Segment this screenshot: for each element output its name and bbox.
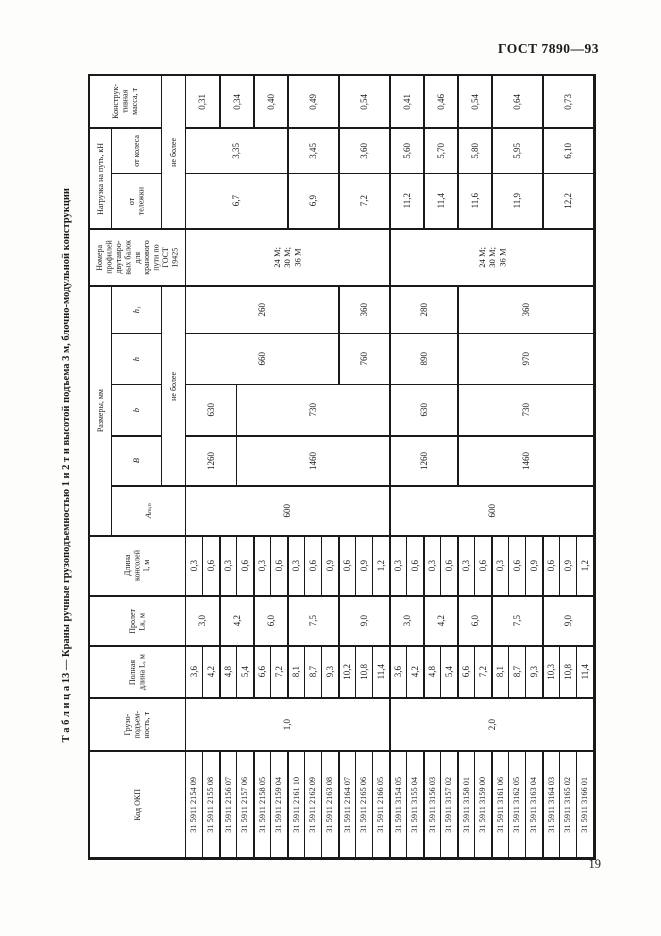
okp-code-cell: 31 5911 3154 05 bbox=[390, 752, 407, 858]
profile-numbers-cell: 24 М; 30 М; 36 М bbox=[390, 230, 594, 287]
header-mass-text: Конструк- тивная масса, т bbox=[111, 84, 139, 119]
okp-code-cell-text: 31 5911 3154 05 bbox=[394, 777, 404, 833]
console-length-cell: 0,6 bbox=[509, 537, 526, 597]
okp-code-cell-text: 31 5911 2165 06 bbox=[359, 777, 369, 833]
console-length-cell: 0,3 bbox=[186, 537, 203, 597]
header-ne-bolee-dim: не более bbox=[162, 287, 186, 487]
span-value-cell-text: 9,0 bbox=[359, 615, 370, 626]
okp-code-cell: 31 5911 3158 01 bbox=[458, 752, 475, 858]
full-length-cell-text: 10,3 bbox=[546, 664, 557, 680]
header-span-text: Пролет Lк, м bbox=[128, 609, 147, 634]
wheel-load-cell: 5,70 bbox=[424, 129, 458, 174]
header-h1-text: h₁ bbox=[131, 306, 141, 313]
okp-code-cell: 31 5911 3159 00 bbox=[475, 752, 492, 858]
console-length-cell: 0,6 bbox=[237, 537, 254, 597]
full-length-cell: 3,6 bbox=[186, 647, 203, 699]
console-length-cell: 0,3 bbox=[458, 537, 475, 597]
wheel-load-cell-text: 5,70 bbox=[436, 143, 447, 159]
b-value-cell: 730 bbox=[237, 385, 390, 437]
b-value-cell-text: 630 bbox=[206, 403, 217, 417]
header-ne-bolee-dim-text: не более bbox=[169, 372, 178, 401]
header-console-length-text: Длина консолей l, м bbox=[123, 550, 151, 581]
full-length-cell-text: 5,4 bbox=[240, 666, 251, 677]
span-value-cell: 9,0 bbox=[543, 597, 594, 647]
header-b-text: b bbox=[131, 408, 141, 412]
header-amin-text: Aₘᵢₙ bbox=[143, 503, 153, 518]
full-length-cell: 8,1 bbox=[288, 647, 305, 699]
span-value-cell-text: 3,0 bbox=[402, 615, 413, 626]
okp-code-cell: 31 5911 3161 06 bbox=[492, 752, 509, 858]
span-value-cell: 4,2 bbox=[424, 597, 458, 647]
header-dimensions: Размеры, мм bbox=[90, 287, 112, 537]
console-length-cell-text: 0,9 bbox=[563, 560, 574, 571]
B-value-cell: 1260 bbox=[186, 437, 237, 487]
h-value-cell: 660 bbox=[186, 334, 339, 385]
full-length-cell: 8,7 bbox=[305, 647, 322, 699]
okp-code-cell: 31 5911 2162 09 bbox=[305, 752, 322, 858]
full-length-cell-text: 3,6 bbox=[189, 666, 200, 677]
mass-value-cell: 0,34 bbox=[220, 76, 254, 129]
full-length-cell: 9,3 bbox=[526, 647, 543, 699]
okp-code-cell-text: 31 5911 3155 04 bbox=[410, 777, 420, 833]
okp-code-cell-text: 31 5911 3158 01 bbox=[462, 777, 472, 833]
h1-value-cell-text: 280 bbox=[419, 303, 430, 317]
B-value-cell-text: 1460 bbox=[308, 452, 319, 470]
header-h-text: h bbox=[131, 357, 141, 361]
console-length-cell-text: 1,2 bbox=[580, 560, 591, 571]
console-length-cell: 0,9 bbox=[356, 537, 373, 597]
trolley-load-cell: 11,9 bbox=[492, 174, 543, 230]
full-length-cell-text: 4,8 bbox=[427, 666, 438, 677]
full-length-cell: 3,6 bbox=[390, 647, 407, 699]
trolley-load-cell-text: 11,4 bbox=[436, 193, 447, 208]
span-value-cell: 4,2 bbox=[220, 597, 254, 647]
full-length-cell-text: 4,8 bbox=[223, 666, 234, 677]
full-length-cell: 9,3 bbox=[322, 647, 339, 699]
console-length-cell-text: 0,3 bbox=[393, 560, 404, 571]
mass-value-cell-text: 0,34 bbox=[232, 94, 243, 110]
full-length-cell: 8,7 bbox=[509, 647, 526, 699]
header-span: Пролет Lк, м bbox=[90, 597, 186, 647]
header-console-length: Длина консолей l, м bbox=[90, 537, 186, 597]
full-length-cell: 8,1 bbox=[492, 647, 509, 699]
okp-code-cell-text: 31 5911 3156 03 bbox=[428, 777, 438, 833]
page-number: 19 bbox=[589, 857, 602, 872]
okp-code-cell-text: 31 5911 2158 05 bbox=[258, 777, 268, 833]
wheel-load-cell: 3,35 bbox=[186, 129, 288, 174]
console-length-cell: 0,3 bbox=[492, 537, 509, 597]
B-value-cell-text: 1460 bbox=[521, 452, 532, 470]
mass-value-cell: 0,64 bbox=[492, 76, 543, 129]
okp-code-cell: 31 5911 3155 04 bbox=[407, 752, 424, 858]
full-length-cell: 10,3 bbox=[543, 647, 560, 699]
full-length-cell-text: 8,1 bbox=[495, 666, 506, 677]
gost-table: Конструк- тивная масса, тне болееНагрузк… bbox=[88, 74, 596, 860]
capacity-value-cell: 2,0 bbox=[390, 699, 594, 752]
mass-value-cell-text: 0,64 bbox=[512, 94, 523, 110]
okp-code-cell-text: 31 5911 3157 02 bbox=[444, 777, 454, 833]
mass-value-cell-text: 0,54 bbox=[359, 94, 370, 110]
full-length-cell-text: 8,7 bbox=[512, 666, 523, 677]
full-length-cell: 6,6 bbox=[254, 647, 271, 699]
profile-numbers-cell-text: 24 М; 30 М; 36 М bbox=[272, 247, 302, 268]
h-value-cell-text: 660 bbox=[257, 352, 268, 366]
okp-code-cell: 31 5911 3164 03 bbox=[543, 752, 560, 858]
trolley-load-cell-text: 11,6 bbox=[470, 193, 481, 208]
wheel-load-cell-text: 3,60 bbox=[359, 143, 370, 159]
wheel-load-cell-text: 3,35 bbox=[231, 143, 242, 159]
header-from-trolley-text: от тележки bbox=[127, 187, 146, 215]
full-length-cell-text: 5,4 bbox=[444, 666, 455, 677]
wheel-load-cell-text: 3,45 bbox=[308, 143, 319, 159]
span-value-cell: 6,0 bbox=[458, 597, 492, 647]
console-length-cell-text: 0,6 bbox=[444, 560, 455, 571]
full-length-cell: 10,2 bbox=[339, 647, 356, 699]
okp-code-cell: 31 5911 3165 02 bbox=[560, 752, 577, 858]
header-okp-code: Код ОКП bbox=[90, 752, 186, 858]
span-value-cell-text: 7,5 bbox=[308, 615, 319, 626]
mass-value-cell: 0,31 bbox=[186, 76, 220, 129]
wheel-load-cell: 5,95 bbox=[492, 129, 543, 174]
console-length-cell: 0,3 bbox=[424, 537, 441, 597]
span-value-cell: 9,0 bbox=[339, 597, 390, 647]
console-length-cell: 0,6 bbox=[305, 537, 322, 597]
console-length-cell-text: 0,6 bbox=[512, 560, 523, 571]
full-length-cell: 11,4 bbox=[373, 647, 390, 699]
b-value-cell-text: 730 bbox=[308, 403, 319, 417]
mass-value-cell-text: 0,31 bbox=[197, 94, 208, 110]
mass-value-cell: 0,40 bbox=[254, 76, 288, 129]
header-beam-profiles: Номера профилей двутавро- вых балок для … bbox=[90, 230, 186, 287]
mass-value-cell: 0,46 bbox=[424, 76, 458, 129]
span-value-cell: 3,0 bbox=[390, 597, 424, 647]
trolley-load-cell-text: 11,9 bbox=[512, 193, 523, 208]
okp-code-cell-text: 31 5911 2159 04 bbox=[274, 777, 284, 833]
console-length-cell-text: 0,3 bbox=[461, 560, 472, 571]
full-length-cell-text: 10,8 bbox=[563, 664, 574, 680]
b-value-cell-text: 730 bbox=[521, 403, 532, 417]
trolley-load-cell: 7,2 bbox=[339, 174, 390, 230]
okp-code-cell: 31 5911 2164 07 bbox=[339, 752, 356, 858]
console-length-cell: 0,3 bbox=[390, 537, 407, 597]
console-length-cell-text: 0,6 bbox=[546, 560, 557, 571]
console-length-cell-text: 0,3 bbox=[223, 560, 234, 571]
header-from-trolley: от тележки bbox=[112, 174, 162, 230]
mass-value-cell-text: 0,49 bbox=[308, 94, 319, 110]
header-B: B bbox=[112, 437, 162, 487]
mass-value-cell: 0,41 bbox=[390, 76, 424, 129]
full-length-cell-text: 9,3 bbox=[529, 666, 540, 677]
console-length-cell-text: 0,3 bbox=[189, 560, 200, 571]
trolley-load-cell-text: 6,7 bbox=[231, 195, 242, 206]
full-length-cell: 5,4 bbox=[441, 647, 458, 699]
wheel-load-cell: 5,60 bbox=[390, 129, 424, 174]
h1-value-cell-text: 360 bbox=[521, 303, 532, 317]
console-length-cell: 0,9 bbox=[526, 537, 543, 597]
okp-code-cell-text: 31 5911 3161 06 bbox=[496, 777, 506, 833]
header-ne-bolee-load-text: не более bbox=[169, 138, 178, 167]
console-length-cell-text: 0,3 bbox=[257, 560, 268, 571]
full-length-cell-text: 10,8 bbox=[359, 664, 370, 680]
span-value-cell-text: 6,0 bbox=[470, 615, 481, 626]
span-value-cell: 6,0 bbox=[254, 597, 288, 647]
trolley-load-cell: 11,6 bbox=[458, 174, 492, 230]
trolley-load-cell-text: 12,2 bbox=[563, 193, 574, 209]
console-length-cell: 1,2 bbox=[373, 537, 390, 597]
span-value-cell: 7,5 bbox=[288, 597, 339, 647]
header-full-length: Полная длина L, м bbox=[90, 647, 186, 699]
console-length-cell-text: 0,9 bbox=[325, 560, 336, 571]
console-length-cell-text: 0,3 bbox=[291, 560, 302, 571]
span-value-cell-text: 4,2 bbox=[436, 615, 447, 626]
console-length-cell: 0,3 bbox=[254, 537, 271, 597]
mass-value-cell-text: 0,40 bbox=[266, 94, 277, 110]
h1-value-cell-text: 360 bbox=[359, 303, 370, 317]
B-value-cell-text: 1260 bbox=[206, 452, 217, 470]
amin-value-cell: 600 bbox=[186, 487, 390, 537]
capacity-value-cell: 1,0 bbox=[186, 699, 390, 752]
header-load-on-track-text: Нагрузка на путь, кН bbox=[96, 143, 105, 215]
full-length-cell: 5,4 bbox=[237, 647, 254, 699]
trolley-load-cell: 6,7 bbox=[186, 174, 288, 230]
console-length-cell-text: 0,3 bbox=[427, 560, 438, 571]
okp-code-cell-text: 31 5911 2163 08 bbox=[325, 777, 335, 833]
header-beam-profiles-text: Номера профилей двутавро- вых балок для … bbox=[95, 240, 180, 275]
h-value-cell-text: 970 bbox=[521, 352, 532, 366]
mass-value-cell-text: 0,46 bbox=[436, 94, 447, 110]
profile-numbers-cell: 24 М; 30 М; 36 М bbox=[186, 230, 390, 287]
wheel-load-cell-text: 6,10 bbox=[563, 143, 574, 159]
full-length-cell-text: 11,4 bbox=[376, 664, 387, 679]
profile-numbers-cell-text: 24 М; 30 М; 36 М bbox=[477, 247, 507, 268]
document-standard-number: ГОСТ 7890—93 bbox=[498, 41, 599, 57]
okp-code-cell-text: 31 5911 3166 01 bbox=[580, 777, 590, 833]
b-value-cell: 630 bbox=[186, 385, 237, 437]
okp-code-cell: 31 5911 2159 04 bbox=[271, 752, 288, 858]
full-length-cell-text: 9,3 bbox=[325, 666, 336, 677]
amin-value-cell-text: 600 bbox=[487, 504, 498, 518]
mass-value-cell-text: 0,73 bbox=[563, 94, 574, 110]
header-load-on-track: Нагрузка на путь, кН bbox=[90, 129, 112, 230]
console-length-cell-text: 0,6 bbox=[308, 560, 319, 571]
trolley-load-cell: 6,9 bbox=[288, 174, 339, 230]
full-length-cell-text: 8,1 bbox=[291, 666, 302, 677]
header-dimensions-text: Размеры, мм bbox=[96, 389, 105, 432]
mass-value-cell-text: 0,54 bbox=[470, 94, 481, 110]
okp-code-cell: 31 5911 3156 03 bbox=[424, 752, 441, 858]
console-length-cell: 1,2 bbox=[577, 537, 594, 597]
header-capacity: Грузо- подъем- ность, т bbox=[90, 699, 186, 752]
console-length-cell-text: 0,6 bbox=[342, 560, 353, 571]
full-length-cell-text: 8,7 bbox=[308, 666, 319, 677]
trolley-load-cell-text: 6,9 bbox=[308, 195, 319, 206]
trolley-load-cell-text: 11,2 bbox=[402, 193, 413, 208]
okp-code-cell-text: 31 5911 2155 08 bbox=[206, 777, 216, 833]
okp-code-cell: 31 5911 3162 05 bbox=[509, 752, 526, 858]
mass-value-cell-text: 0,41 bbox=[402, 94, 413, 110]
full-length-cell-text: 11,4 bbox=[580, 664, 591, 679]
full-length-cell: 4,2 bbox=[407, 647, 424, 699]
wheel-load-cell: 5,80 bbox=[458, 129, 492, 174]
full-length-cell: 4,2 bbox=[203, 647, 220, 699]
okp-code-cell: 31 5911 2155 08 bbox=[203, 752, 220, 858]
okp-code-cell-text: 31 5911 2156 07 bbox=[224, 777, 234, 833]
okp-code-cell-text: 31 5911 3162 05 bbox=[512, 777, 522, 833]
span-value-cell-text: 6,0 bbox=[266, 615, 277, 626]
full-length-cell: 4,8 bbox=[220, 647, 237, 699]
full-length-cell-text: 10,2 bbox=[342, 664, 353, 680]
okp-code-cell-text: 31 5911 2154 09 bbox=[189, 777, 199, 833]
okp-code-cell: 31 5911 3157 02 bbox=[441, 752, 458, 858]
console-length-cell: 0,6 bbox=[543, 537, 560, 597]
table-title: Т а б л и ц а 13 — Краны ручные грузопод… bbox=[52, 74, 82, 856]
h1-value-cell: 260 bbox=[186, 287, 339, 334]
header-capacity-text: Грузо- подъем- ность, т bbox=[123, 711, 151, 739]
wheel-load-cell-text: 5,60 bbox=[402, 143, 413, 159]
B-value-cell: 1460 bbox=[458, 437, 594, 487]
okp-code-cell: 31 5911 2166 05 bbox=[373, 752, 390, 858]
mass-value-cell: 0,54 bbox=[458, 76, 492, 129]
okp-code-cell: 31 5911 2158 05 bbox=[254, 752, 271, 858]
table-title-text: Т а б л и ц а 13 — Краны ручные грузопод… bbox=[61, 188, 73, 742]
header-ne-bolee-load: не более bbox=[162, 76, 186, 230]
okp-code-cell: 31 5911 2165 06 bbox=[356, 752, 373, 858]
okp-code-cell-text: 31 5911 3159 00 bbox=[478, 777, 488, 833]
amin-value-cell-text: 600 bbox=[282, 504, 293, 518]
okp-code-cell: 31 5911 2156 07 bbox=[220, 752, 237, 858]
full-length-cell: 7,2 bbox=[271, 647, 288, 699]
capacity-value-cell-text: 1,0 bbox=[282, 719, 293, 730]
console-length-cell: 0,9 bbox=[560, 537, 577, 597]
trolley-load-cell: 11,4 bbox=[424, 174, 458, 230]
span-value-cell: 3,0 bbox=[186, 597, 220, 647]
h-value-cell: 890 bbox=[390, 334, 458, 385]
h1-value-cell: 360 bbox=[339, 287, 390, 334]
full-length-cell-text: 4,2 bbox=[410, 666, 421, 677]
span-value-cell: 7,5 bbox=[492, 597, 543, 647]
header-from-wheel: от колеса bbox=[112, 129, 162, 174]
okp-code-cell: 31 5911 3166 01 bbox=[577, 752, 594, 858]
console-length-cell: 0,3 bbox=[220, 537, 237, 597]
header-mass: Конструк- тивная масса, т bbox=[90, 76, 162, 129]
h-value-cell: 760 bbox=[339, 334, 390, 385]
console-length-cell-text: 0,6 bbox=[274, 560, 285, 571]
console-length-cell-text: 0,9 bbox=[529, 560, 540, 571]
B-value-cell: 1460 bbox=[237, 437, 390, 487]
okp-code-cell-text: 31 5911 2157 06 bbox=[240, 777, 250, 833]
console-length-cell-text: 0,6 bbox=[206, 560, 217, 571]
okp-code-cell: 31 5911 2154 09 bbox=[186, 752, 203, 858]
span-value-cell-text: 4,2 bbox=[232, 615, 243, 626]
full-length-cell: 11,4 bbox=[577, 647, 594, 699]
okp-code-cell: 31 5911 2161 10 bbox=[288, 752, 305, 858]
console-length-cell-text: 1,2 bbox=[376, 560, 387, 571]
console-length-cell-text: 0,6 bbox=[410, 560, 421, 571]
header-b: b bbox=[112, 385, 162, 437]
okp-code-cell-text: 31 5911 2161 10 bbox=[292, 777, 302, 833]
full-length-cell-text: 4,2 bbox=[206, 666, 217, 677]
okp-code-cell-text: 31 5911 2166 05 bbox=[376, 777, 386, 833]
capacity-value-cell-text: 2,0 bbox=[487, 719, 498, 730]
okp-code-cell: 31 5911 2157 06 bbox=[237, 752, 254, 858]
wheel-load-cell: 6,10 bbox=[543, 129, 594, 174]
mass-value-cell: 0,54 bbox=[339, 76, 390, 129]
console-length-cell-text: 0,3 bbox=[495, 560, 506, 571]
full-length-cell-text: 7,2 bbox=[274, 666, 285, 677]
full-length-cell: 4,8 bbox=[424, 647, 441, 699]
full-length-cell: 7,2 bbox=[475, 647, 492, 699]
console-length-cell: 0,6 bbox=[475, 537, 492, 597]
amin-value-cell: 600 bbox=[390, 487, 594, 537]
mass-value-cell: 0,73 bbox=[543, 76, 594, 129]
full-length-cell: 10,8 bbox=[356, 647, 373, 699]
full-length-cell-text: 6,6 bbox=[461, 666, 472, 677]
span-value-cell-text: 9,0 bbox=[563, 615, 574, 626]
header-full-length-text: Полная длина L, м bbox=[128, 654, 147, 690]
okp-code-cell: 31 5911 2163 08 bbox=[322, 752, 339, 858]
trolley-load-cell: 12,2 bbox=[543, 174, 594, 230]
console-length-cell: 0,6 bbox=[407, 537, 424, 597]
header-from-wheel-text: от колеса bbox=[132, 135, 141, 167]
B-value-cell: 1260 bbox=[390, 437, 458, 487]
trolley-load-cell: 11,2 bbox=[390, 174, 424, 230]
console-length-cell: 0,6 bbox=[271, 537, 288, 597]
trolley-load-cell-text: 7,2 bbox=[359, 195, 370, 206]
okp-code-cell-text: 31 5911 2162 09 bbox=[308, 777, 318, 833]
page: { "page": { "header": "ГОСТ 7890—93", "p… bbox=[0, 0, 661, 936]
full-length-cell-text: 7,2 bbox=[478, 666, 489, 677]
header-B-text: B bbox=[131, 458, 141, 463]
okp-code-cell-text: 31 5911 2164 07 bbox=[343, 777, 353, 833]
h-value-cell: 970 bbox=[458, 334, 594, 385]
h-value-cell-text: 890 bbox=[419, 352, 430, 366]
B-value-cell-text: 1260 bbox=[419, 452, 430, 470]
console-length-cell: 0,6 bbox=[441, 537, 458, 597]
wheel-load-cell: 3,45 bbox=[288, 129, 339, 174]
okp-code-cell-text: 31 5911 3165 02 bbox=[563, 777, 573, 833]
okp-code-cell-text: 31 5911 3164 03 bbox=[547, 777, 557, 833]
wheel-load-cell-text: 5,95 bbox=[512, 143, 523, 159]
console-length-cell-text: 0,6 bbox=[240, 560, 251, 571]
b-value-cell: 730 bbox=[458, 385, 594, 437]
h1-value-cell: 360 bbox=[458, 287, 594, 334]
wheel-load-cell: 3,60 bbox=[339, 129, 390, 174]
okp-code-cell: 31 5911 3163 04 bbox=[526, 752, 543, 858]
mass-value-cell: 0,49 bbox=[288, 76, 339, 129]
console-length-cell: 0,6 bbox=[339, 537, 356, 597]
header-okp-code-text: Код ОКП bbox=[133, 789, 142, 821]
span-value-cell-text: 3,0 bbox=[197, 615, 208, 626]
okp-code-cell-text: 31 5911 3163 04 bbox=[529, 777, 539, 833]
console-length-cell: 0,3 bbox=[288, 537, 305, 597]
h1-value-cell: 280 bbox=[390, 287, 458, 334]
b-value-cell-text: 630 bbox=[419, 403, 430, 417]
h-value-cell-text: 760 bbox=[359, 352, 370, 366]
full-length-cell: 6,6 bbox=[458, 647, 475, 699]
console-length-cell: 0,6 bbox=[203, 537, 220, 597]
console-length-cell: 0,9 bbox=[322, 537, 339, 597]
span-value-cell-text: 7,5 bbox=[512, 615, 523, 626]
header-amin: Aₘᵢₙ bbox=[112, 487, 186, 537]
console-length-cell-text: 0,6 bbox=[478, 560, 489, 571]
full-length-cell: 10,8 bbox=[560, 647, 577, 699]
console-length-cell-text: 0,9 bbox=[359, 560, 370, 571]
full-length-cell-text: 6,6 bbox=[257, 666, 268, 677]
h1-value-cell-text: 260 bbox=[257, 303, 268, 317]
full-length-cell-text: 3,6 bbox=[393, 666, 404, 677]
header-h1: h₁ bbox=[112, 287, 162, 334]
wheel-load-cell-text: 5,80 bbox=[470, 143, 481, 159]
